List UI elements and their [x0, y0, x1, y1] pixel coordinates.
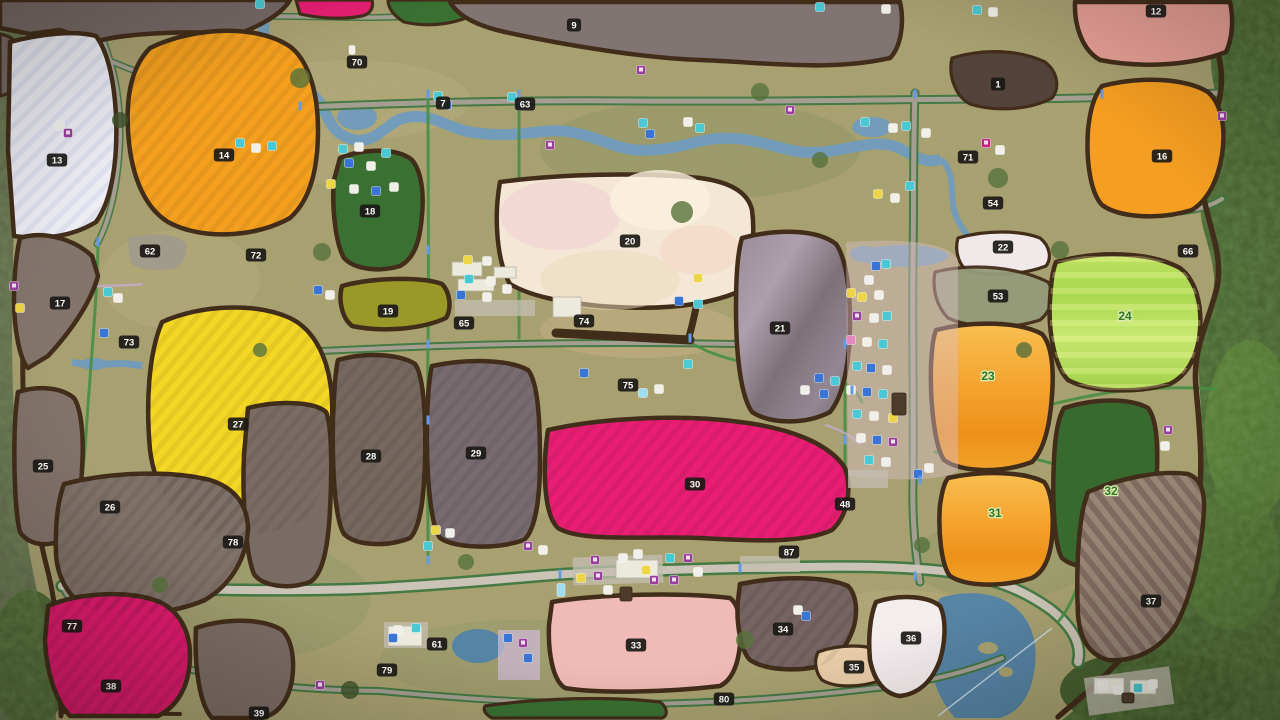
farm-map[interactable]: 1791213141617181920212225262728293033343… [0, 0, 1280, 720]
vignette [0, 0, 1280, 720]
game-map-screen: 1791213141617181920212225262728293033343… [0, 0, 1280, 720]
